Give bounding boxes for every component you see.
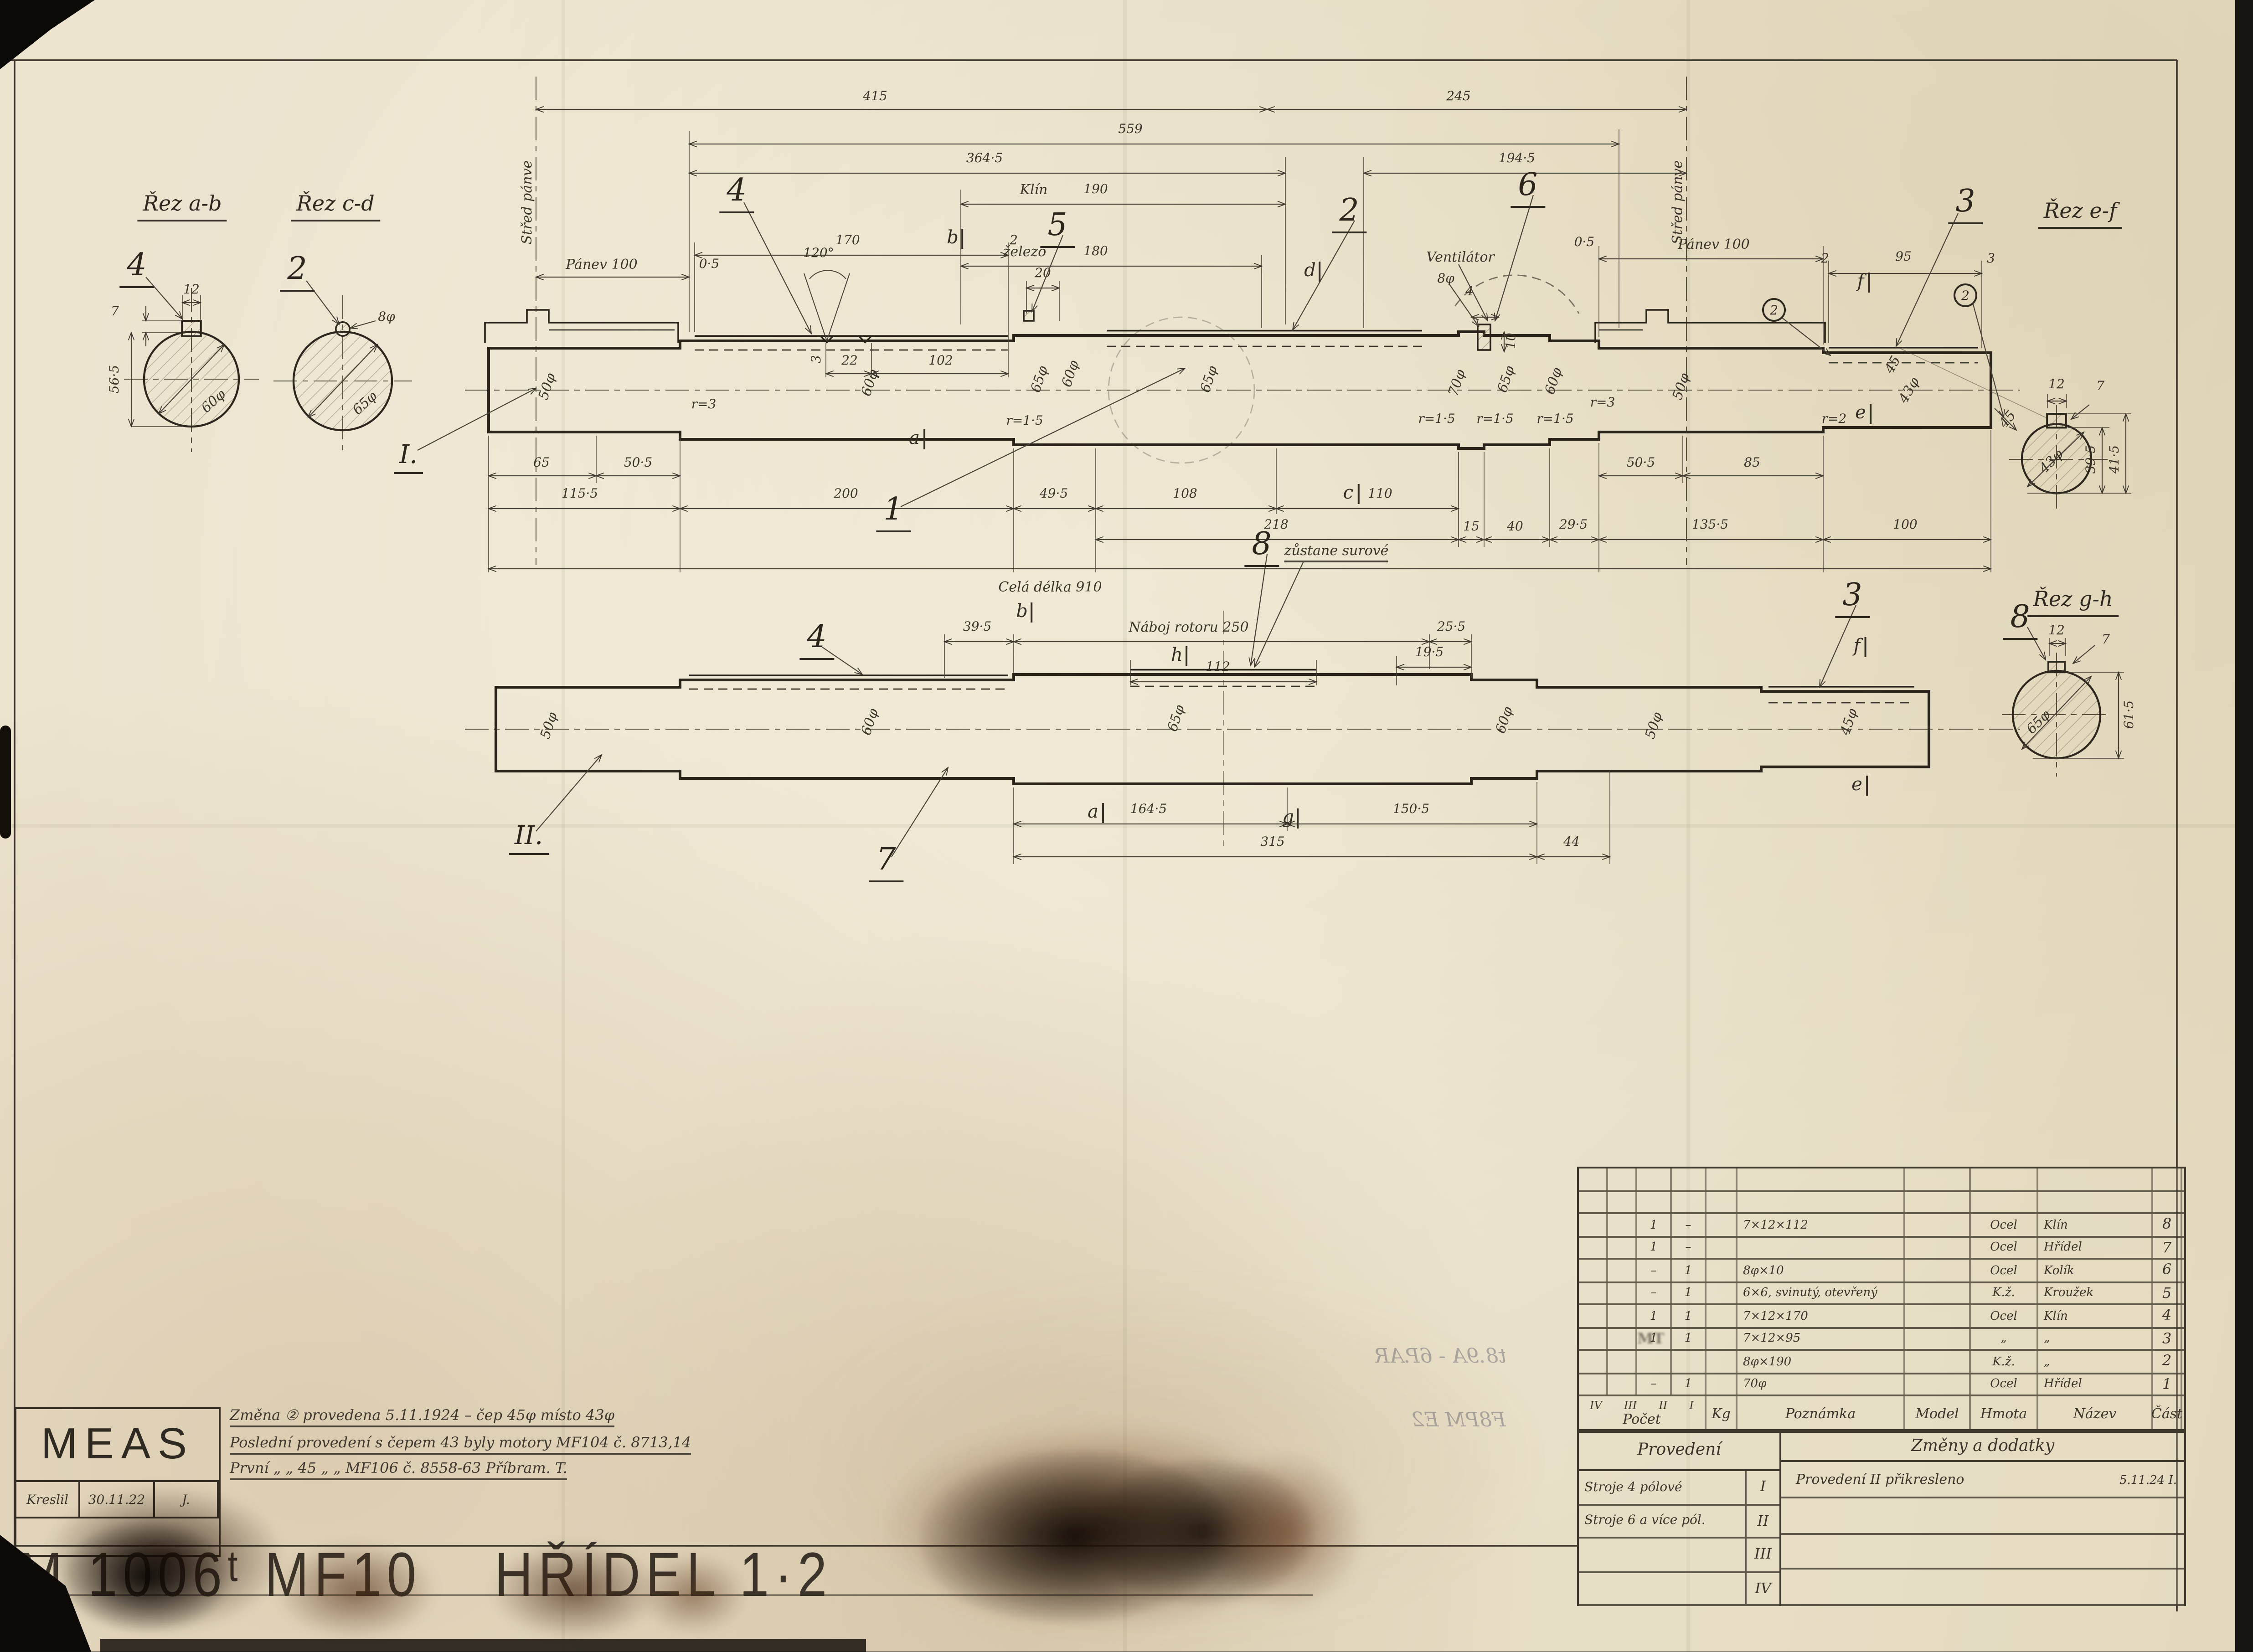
dimension-label: 190 [1083,182,1108,197]
section-title: Řez c-d [291,190,380,221]
header-cast: Část [2153,1396,2182,1429]
item-number: 6 [1511,168,1545,208]
item-number: 4 [799,620,834,660]
dimension-label: 315 [1260,835,1285,849]
dimension-label: 0·5 [699,257,720,272]
dimension-label: 40 [1507,520,1523,534]
revisions-block: Provedení Stroje 4 pólovéI Stroje 6 a ví… [1579,1431,2184,1606]
dimension-label: 115·5 [562,487,598,501]
zmeny-entry-text: Provedení II přikresleno [1781,1471,2119,1487]
zmeny-header: Změny a dodatky [1781,1433,2184,1462]
section-letter: a [909,429,925,449]
item-number: 2 [1332,193,1366,233]
diameter-label: 50φ [1669,371,1693,401]
mirrored-ink-bleed: F8PM E2 [1411,1408,1505,1432]
dimension-label: 8φ [1437,272,1454,286]
dimension-label: 85 [1744,456,1760,470]
change-marker-circled: 2 [1954,283,1977,307]
dimension-label: 10 [1504,333,1519,349]
section-title: Řez g-h [2027,586,2118,617]
dimension-label: 61·5 [2122,700,2137,729]
section-letter: g [1282,808,1299,829]
section-letter: e [1851,776,1868,796]
item-number: 8 [2003,600,2037,640]
dimension-label: 100 [1893,518,1918,532]
diameter-label: 65φ [349,388,380,418]
diameter-label: 45 [1881,353,1904,376]
item-number: 5 [1040,208,1074,248]
header-nazev: Název [2038,1396,2153,1429]
kreslil-date: 30.11.22 [80,1482,155,1517]
parts-table: 1– 7×12×112 OcelKlín8 1– OcelHřídel7 –1 … [1577,1167,2186,1606]
diameter-label: 60φ [858,367,882,398]
dimension-label: 39·5 [2084,445,2098,473]
dimension-label: 0·5 [1574,235,1595,250]
dimension-label: 110 [1368,487,1392,501]
change-note-1: Změna ② provedena 5.11.1924 – čep 45φ mí… [230,1407,614,1427]
handwritten-note: Pánev 100 [566,256,638,273]
drawing-title: M 1006ᵗ MF10HŘÍDEL 1·2 [18,1542,832,1613]
dimension-label: 218 [1264,518,1289,532]
provedeni-box: Provedení Stroje 4 pólovéI Stroje 6 a ví… [1579,1433,1781,1606]
diameter-label: 65φ [1027,364,1052,394]
header-poznamka: Poznámka [1737,1396,1905,1429]
section-letter: b [1016,602,1033,623]
dimension-label: 200 [834,487,858,501]
section-letter: a [1088,803,1104,823]
dimension-label: 170 [835,233,860,248]
diameter-label: 50φ [1642,710,1666,741]
handwritten-note: Střed pánve [519,160,535,245]
item-number: 4 [719,173,753,213]
dimension-label: 7 [111,304,119,319]
header-hmota: Hmota [1971,1396,2038,1429]
parts-table-row: –1 8φ×10 OcelKolík6 [1579,1260,2184,1282]
dimension-label: r=2 [1822,412,1847,427]
drawing-number: M 1006ᵗ MF10 [18,1542,422,1611]
parts-table-row: –1 6×6, svinutý, otevřený K.ž.Kroužek5 [1579,1282,2184,1305]
table-empty-row [1579,1168,2184,1191]
provedeni-row: Stroje 6 a více pól.II [1579,1505,1779,1539]
item-number: 8 [1244,527,1279,567]
handwritten-note: Náboj rotoru 250 [1129,619,1248,635]
diameter-label: 45φ [1837,706,1861,737]
diameter-label: 60φ [1058,358,1083,389]
drawing-name: HŘÍDEL 1·2 [495,1542,832,1611]
change-note-2: Poslední provedení s čepem 43 byly motor… [230,1435,691,1455]
parts-table-row: 1– OcelHřídel7 [1579,1237,2184,1260]
change-marker-circled: 2 [1762,298,1786,322]
diameter-label: 65φ [1197,364,1221,394]
dimension-label: 112 [1206,660,1230,674]
diameter-label: 43φ [2036,446,2066,476]
diameter-label: 60φ [1542,365,1566,396]
dimension-label: 39·5 [963,620,991,634]
section-letter: f [1857,273,1870,293]
parts-table-row: 11 7×12×170 OcelKlín4 [1579,1305,2184,1328]
dimension-label: 29·5 [1559,518,1588,532]
table-empty-row [1579,1191,2184,1214]
item-number: 3 [1948,184,1982,224]
parts-table-row: –1 70φ OcelHřídel1 [1579,1374,2184,1396]
dimension-label: 120° [803,246,834,261]
kreslil-initial: J. [155,1482,219,1517]
dimension-label: 19·5 [1415,645,1444,660]
provedeni-row: Stroje 4 pólovéI [1579,1471,1779,1505]
zmeny-box: Změny a dodatky Provedení II přikresleno… [1781,1433,2184,1606]
view-label: I. [394,441,423,474]
dimension-label: 20 [1035,266,1051,281]
dimension-label: r=3 [1590,396,1615,410]
kreslil-row: Kreslil 30.11.22 J. [16,1482,219,1518]
dimension-label: 65 [533,456,550,470]
item-number: 1 [876,492,910,532]
section-title: Řez a-b [137,190,227,221]
handwritten-note-underlined: zůstane surové [1284,542,1389,562]
change-note-3: První „ „ 45 „ „ MF106 č. 8558-63 Příbra… [230,1460,567,1480]
item-number: 3 [1835,578,1869,618]
section-letter: e [1855,404,1871,424]
dimension-label: 25·5 [1437,620,1465,634]
diameter-label: 50φ [535,371,559,401]
provedeni-row: IV [1579,1572,1779,1606]
section-letter: b [947,229,964,249]
dimension-label: r=1·5 [1536,412,1573,427]
item-number: 2 [280,252,314,292]
section-letter: f [1854,637,1866,657]
dimension-label: 41·5 [2108,445,2122,473]
dimension-label: r=1·5 [1006,414,1043,428]
dimension-label: 56·5 [108,365,122,393]
diameter-label: 45 [1995,407,2019,431]
diameter-label: 65φ [1494,364,1518,394]
zmeny-entry-date: 5.11.24 I. [2119,1472,2184,1487]
dimension-label: 3 [809,355,824,363]
section-letter: c [1343,484,1359,504]
diameter-label: 60φ [1492,705,1516,735]
header-pocet: IVIII III Počet [1579,1396,1707,1429]
diameter-label: 65φ [1164,703,1188,733]
diameter-label: 70φ [1445,367,1469,398]
title-block: MEAS Kreslil 30.11.22 J. [15,1407,221,1557]
dimension-label: 135·5 [1692,518,1728,532]
parts-table-row: 8φ×190 K.ž.„2 [1579,1351,2184,1374]
drawing-sheet: Řez a-bŘez c-dŘez e-fŘez g-h 42384526184… [0,0,2253,1652]
dimension-label: r=1·5 [1476,412,1513,427]
handwritten-note: Střed pánve [1669,160,1686,245]
dimension-label: 108 [1173,487,1197,501]
parts-table-header: IVIII III Počet Kg Poznámka Model Hmota … [1579,1396,2184,1431]
dimension-label: 164·5 [1130,802,1167,817]
dimension-label: 15 [1463,520,1480,534]
diameter-label: 43φ [1895,374,1923,406]
dimension-label: 2 [1821,252,1829,266]
dimension-label: 50·5 [1627,456,1655,470]
section-title: Řez e-f [2038,198,2123,229]
stamp-smudge: MT [1637,1329,1664,1347]
dimension-label: r=1·5 [1418,412,1455,427]
provedeni-header: Provedení [1579,1433,1779,1471]
dimension-label: 7 [2102,633,2110,647]
dimension-label: 150·5 [1393,802,1429,817]
dimension-label: 8φ [378,310,395,324]
handwritten-note: Celá délka 910 [998,579,1102,595]
header-model: Model [1905,1396,1971,1429]
handwritten-note: Klín [1020,181,1048,198]
dimension-label: 7 [2096,379,2104,394]
diameter-label: 65φ [2023,706,2053,737]
header-kg: Kg [1707,1396,1737,1429]
handwritten-note: železo [1003,243,1047,260]
diameter-label: 60φ [198,386,229,416]
item-number: 7 [869,842,903,882]
dimension-label: 12 [2048,377,2065,392]
dimension-label: 12 [183,283,200,297]
dimension-label: 364·5 [966,151,1003,166]
dimension-label: 95 [1895,250,1912,264]
dimension-label: 49·5 [1040,487,1068,501]
kreslil-label: Kreslil [16,1482,80,1517]
dimension-label: 102 [928,354,953,368]
dimension-label: 4 [1465,284,1474,299]
diameter-label: 60φ [858,706,882,737]
dimension-label: 44 [1563,835,1580,849]
dimension-label: 245 [1446,89,1471,104]
handwritten-note: Ventilátor [1426,249,1495,265]
dimension-label: 50·5 [624,456,652,470]
parts-table-row: 1– 7×12×112 OcelKlín8 [1579,1214,2184,1237]
section-letter: h [1171,646,1188,666]
diameter-label: 50φ [537,710,561,741]
zmeny-entry: Provedení II přikresleno 5.11.24 I. [1781,1462,2184,1498]
item-number: 4 [119,248,154,288]
section-letter: d [1304,262,1321,282]
view-label: II. [509,822,548,855]
dimension-label: 3 [1987,252,1995,266]
mirrored-ink-bleed: t8.9A - 6P.AR [1374,1344,1506,1368]
company-logo: MEAS [16,1409,219,1482]
dimension-label: 12 [2048,623,2065,638]
dimension-label: 194·5 [1499,151,1535,166]
dimension-label: r=3 [691,397,717,412]
parts-table-row: 11 7×12×95 „„3 [1579,1328,2184,1351]
dimension-label: 559 [1118,122,1143,137]
dimension-label: 22 [841,354,858,368]
handwritten-note: Pánev 100 [1678,236,1750,252]
dimension-label: 180 [1083,244,1108,259]
provedeni-row: III [1579,1539,1779,1572]
dimension-label: 415 [863,89,887,104]
